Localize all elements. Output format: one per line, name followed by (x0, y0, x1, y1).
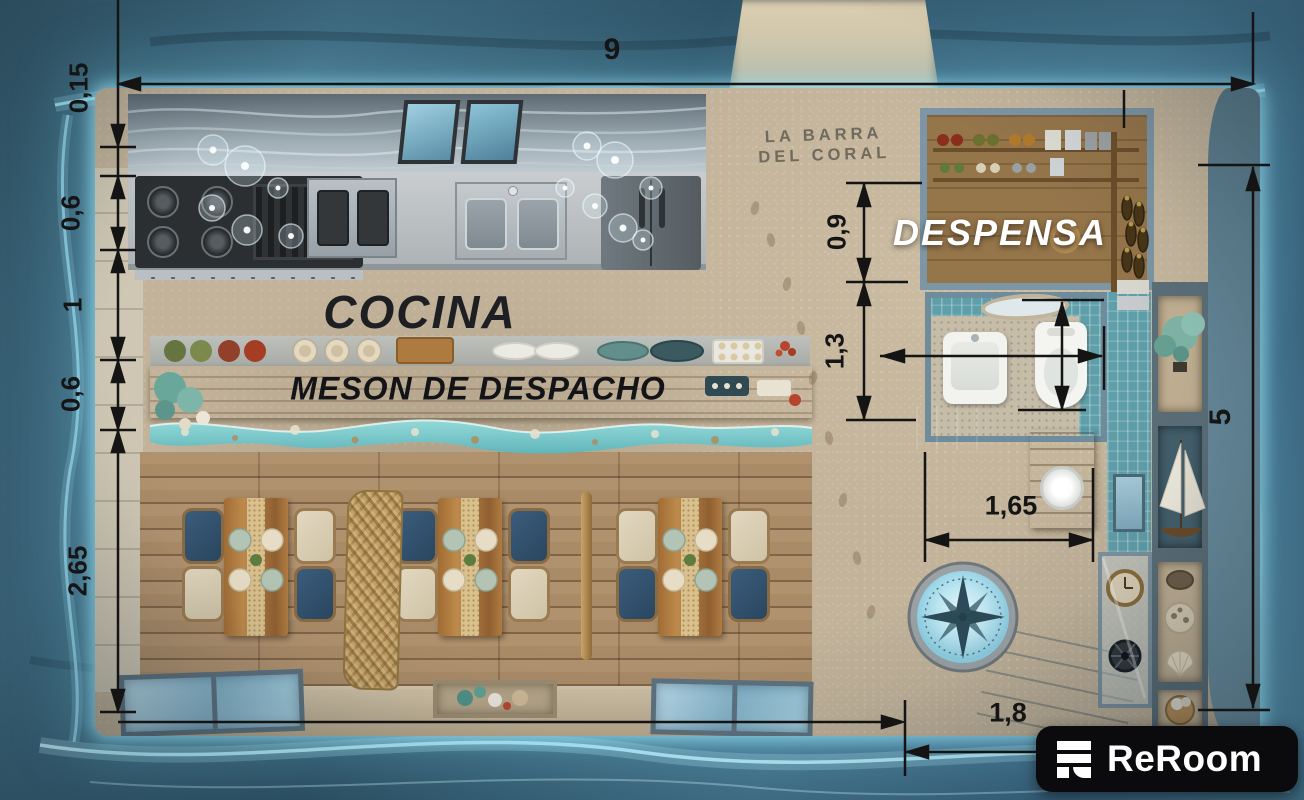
reroom-logo-icon (1054, 739, 1094, 779)
dim-label-counter-depth: 0,6 (56, 376, 87, 412)
reroom-watermark: ReRoom (1036, 726, 1298, 792)
dim-label-dining-depth: 2,65 (63, 546, 94, 597)
pantry-label: DESPENSA (893, 212, 1107, 254)
bar-name-label: LA BARRA DEL CORAL (757, 124, 890, 168)
dim-label-right-height: 5 (1204, 409, 1238, 426)
dim-total-width (118, 12, 1253, 90)
dim-label-wall-offset: 0,15 (64, 63, 95, 114)
floor-plan-scene: 9 0,15 0,6 1 0,6 2,65 0,9 1,3 1,65 1,8 5… (0, 0, 1304, 800)
dim-label-pantry-depth: 0,9 (822, 214, 853, 250)
dim-label-entrance-width: 1,8 (989, 698, 1027, 729)
dim-label-kitchen-depth: 0,6 (56, 195, 87, 231)
dim-bathroom-cross (880, 300, 1104, 410)
dim-label-kitchen-aisle: 1 (58, 298, 89, 312)
dim-label-bathroom-depth: 1,3 (820, 333, 851, 369)
dim-label-bathroom-width: 1,65 (985, 491, 1038, 522)
kitchen-label: COCINA (323, 285, 516, 339)
counter-label: MESON DE DESPACHO (290, 371, 666, 408)
watermark-brand: ReRoom (1107, 738, 1262, 780)
dim-label-total-width: 9 (604, 33, 621, 67)
dim-right-height (1198, 165, 1270, 710)
dim-left-chain (100, 0, 902, 728)
